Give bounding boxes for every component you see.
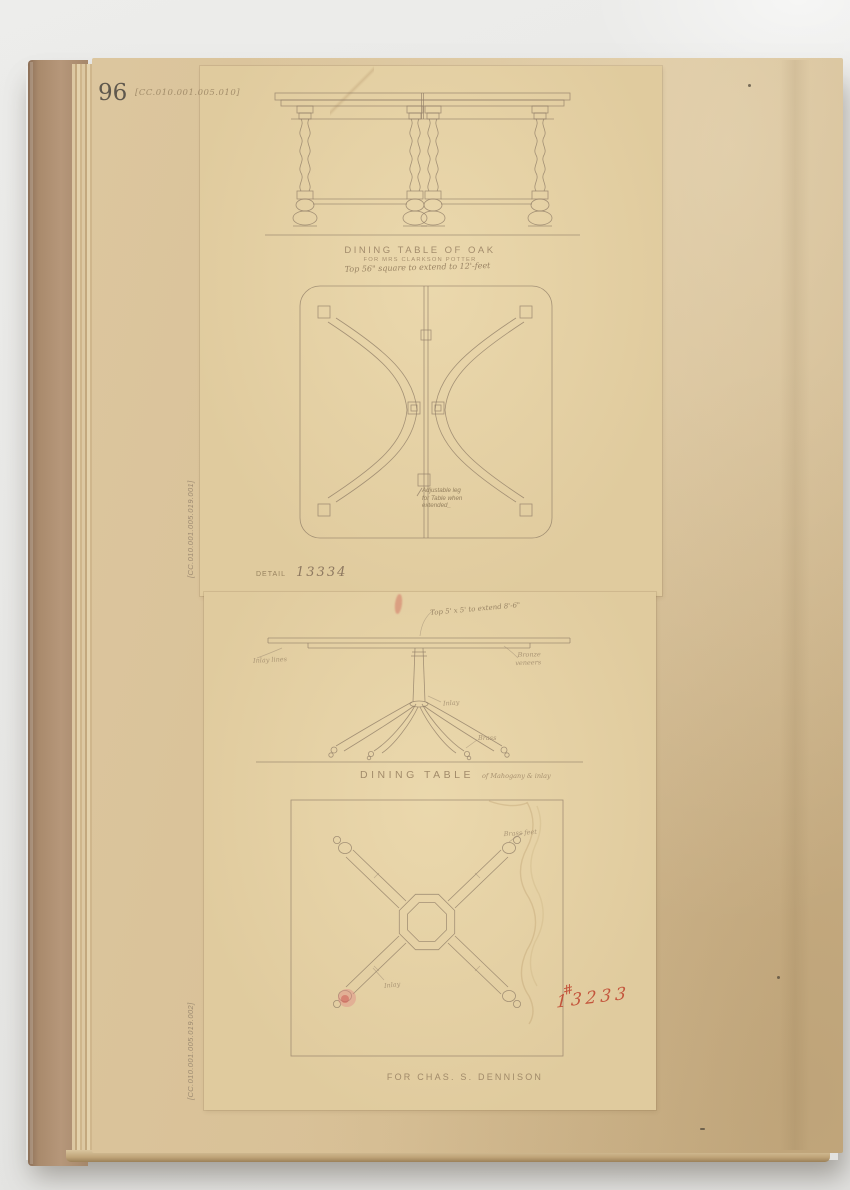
page-warp-shading <box>780 60 810 1150</box>
detail-number-line: DETAIL13334 <box>256 563 347 581</box>
page-number: 96 <box>98 80 127 106</box>
oak-table-elevation-drawing <box>265 85 580 245</box>
catalog-code-margin-lower: [CC.010.001.005.019.002] <box>186 1002 195 1100</box>
mahogany-table-caption: DINING TABLEof Mahogany & inlay <box>360 765 551 783</box>
oak-table-plan-note: Adjustable leg for Table when extended_ <box>422 487 462 510</box>
catalog-code-margin-upper: [CC.010.001.005.019.001] <box>186 480 195 578</box>
mahogany-table-material: of Mahogany & inlay <box>482 772 551 780</box>
annotation-inlay-plan: Inlay <box>384 980 401 990</box>
dust-speck <box>777 976 780 979</box>
annotation-brass: Brass <box>478 734 496 742</box>
plan-note-line: for Table when <box>422 495 462 503</box>
catalog-code-header: [CC.010.001.005.010] <box>135 88 240 98</box>
annotation-inlay: Inlay <box>443 698 460 707</box>
dust-speck <box>700 1128 705 1130</box>
plan-note-line: extended_ <box>422 502 462 510</box>
detail-label: DETAIL <box>256 571 286 578</box>
oak-table-title: DINING TABLE OF OAK <box>270 245 570 256</box>
order-number-red: # 13233 <box>556 976 630 1008</box>
scrapbook-photo: 96 [CC.010.001.005.010] [CC.010.001.005.… <box>0 0 850 1190</box>
mahogany-table-elevation-drawing <box>252 596 587 768</box>
dust-speck <box>748 84 751 87</box>
mahogany-table-client-caption: FOR CHAS. S. DENNISON <box>350 1072 580 1082</box>
plan-note-line: Adjustable leg <box>422 487 462 495</box>
annotation-bronze-veneers: Bronze veneers <box>497 651 541 668</box>
book-cover-edge <box>30 62 33 1164</box>
detail-number: 13334 <box>296 565 347 580</box>
mahogany-table-title: DINING TABLE <box>360 769 474 781</box>
